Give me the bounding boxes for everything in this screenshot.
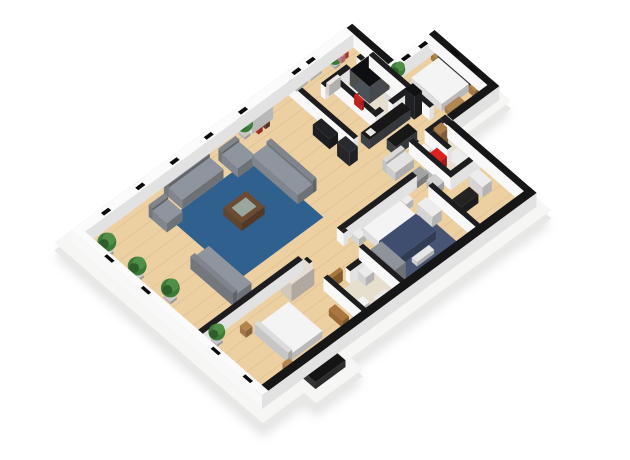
floorplan-3d-render <box>0 0 630 460</box>
wall-master-west-a <box>341 228 348 246</box>
floorplan-viewport <box>0 0 630 460</box>
